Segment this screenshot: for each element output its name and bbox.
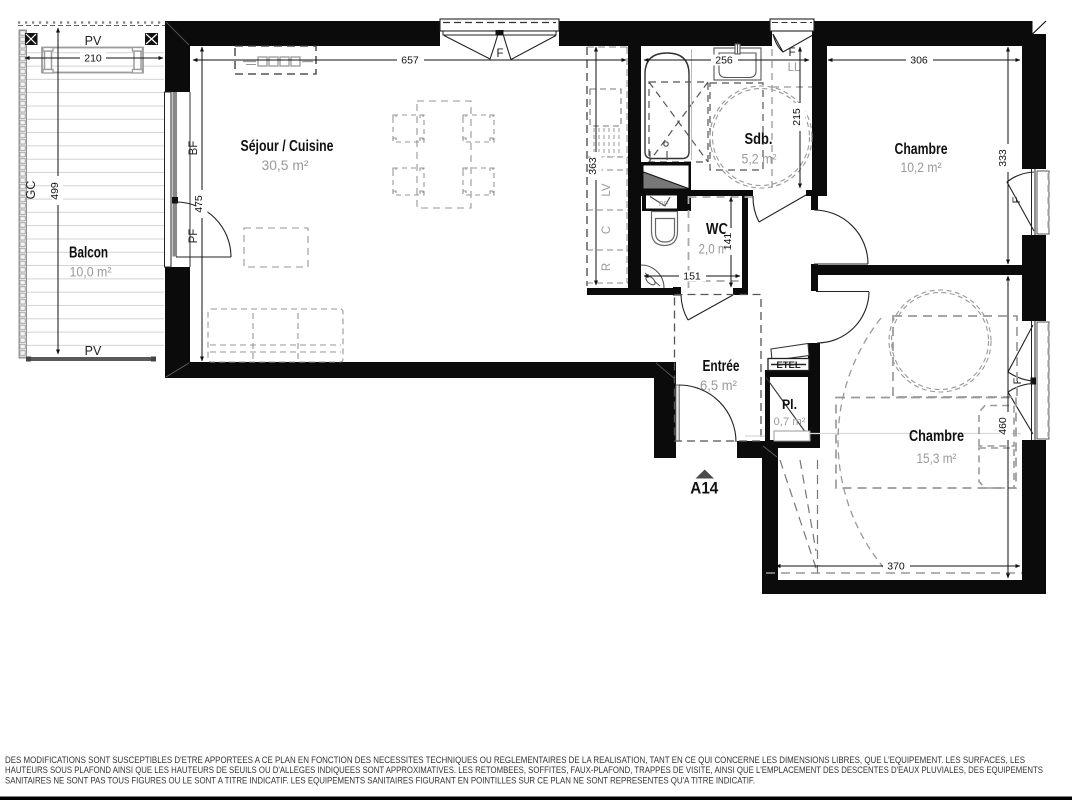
svg-text:10,0 m²: 10,0 m² — [70, 265, 112, 280]
svg-text:A14: A14 — [690, 480, 719, 498]
svg-text:BF: BF — [188, 141, 200, 156]
svg-text:306: 306 — [910, 55, 928, 67]
svg-text:PF: PF — [188, 229, 200, 244]
svg-text:Balcon: Balcon — [69, 245, 108, 262]
svg-text:F: F — [1011, 196, 1023, 203]
svg-text:GC: GC — [24, 181, 38, 200]
svg-text:ETEL: ETEL — [776, 360, 800, 371]
svg-text:SANITAIRES NE SONT PAS TOUS FI: SANITAIRES NE SONT PAS TOUS FIGURES OU L… — [5, 776, 755, 786]
svg-text:Séjour / Cuisine: Séjour / Cuisine — [241, 138, 334, 155]
svg-text:PV: PV — [85, 34, 102, 48]
svg-text:HAUTEURS SOUS PLAFOND AINSI QU: HAUTEURS SOUS PLAFOND AINSI QUE LES HAUT… — [5, 765, 1043, 775]
svg-text:Pl.: Pl. — [782, 397, 797, 412]
svg-text:5,2 m²: 5,2 m² — [742, 152, 777, 167]
svg-text:460: 460 — [997, 417, 1009, 435]
svg-text:F: F — [496, 48, 503, 60]
svg-text:657: 657 — [401, 55, 419, 67]
svg-text:Chambre: Chambre — [909, 428, 964, 445]
svg-text:F: F — [1012, 377, 1024, 384]
svg-text:333: 333 — [997, 149, 1009, 167]
svg-text:141: 141 — [722, 233, 734, 251]
svg-text:R: R — [601, 263, 613, 271]
svg-text:30,5 m²: 30,5 m² — [262, 158, 310, 173]
svg-text:C: C — [601, 226, 613, 234]
svg-text:LL: LL — [788, 62, 801, 74]
svg-text:210: 210 — [84, 53, 102, 65]
svg-text:DES MODIFICATIONS SONT SUSCEPT: DES MODIFICATIONS SONT SUSCEPTIBLES D'ET… — [5, 755, 1025, 765]
svg-text:215: 215 — [791, 108, 803, 126]
svg-text:Sdb.: Sdb. — [745, 131, 773, 148]
svg-text:15,3 m²: 15,3 m² — [917, 451, 957, 466]
svg-text:Entrée: Entrée — [703, 358, 740, 375]
svg-text:LV: LV — [601, 183, 613, 197]
svg-text:6,5 m²: 6,5 m² — [700, 378, 737, 393]
svg-text:RP: RP — [659, 201, 668, 208]
svg-text:256: 256 — [715, 55, 733, 67]
svg-text:Chambre: Chambre — [895, 141, 948, 158]
svg-text:10,2 m²: 10,2 m² — [901, 160, 942, 175]
svg-text:475: 475 — [193, 195, 205, 213]
svg-text:363: 363 — [587, 157, 599, 175]
svg-text:151: 151 — [683, 271, 701, 283]
svg-text:F: F — [788, 47, 795, 59]
svg-text:0,7 m²: 0,7 m² — [774, 416, 806, 428]
svg-text:370: 370 — [887, 561, 905, 573]
svg-text:499: 499 — [49, 182, 61, 200]
svg-text:PV: PV — [85, 344, 102, 358]
